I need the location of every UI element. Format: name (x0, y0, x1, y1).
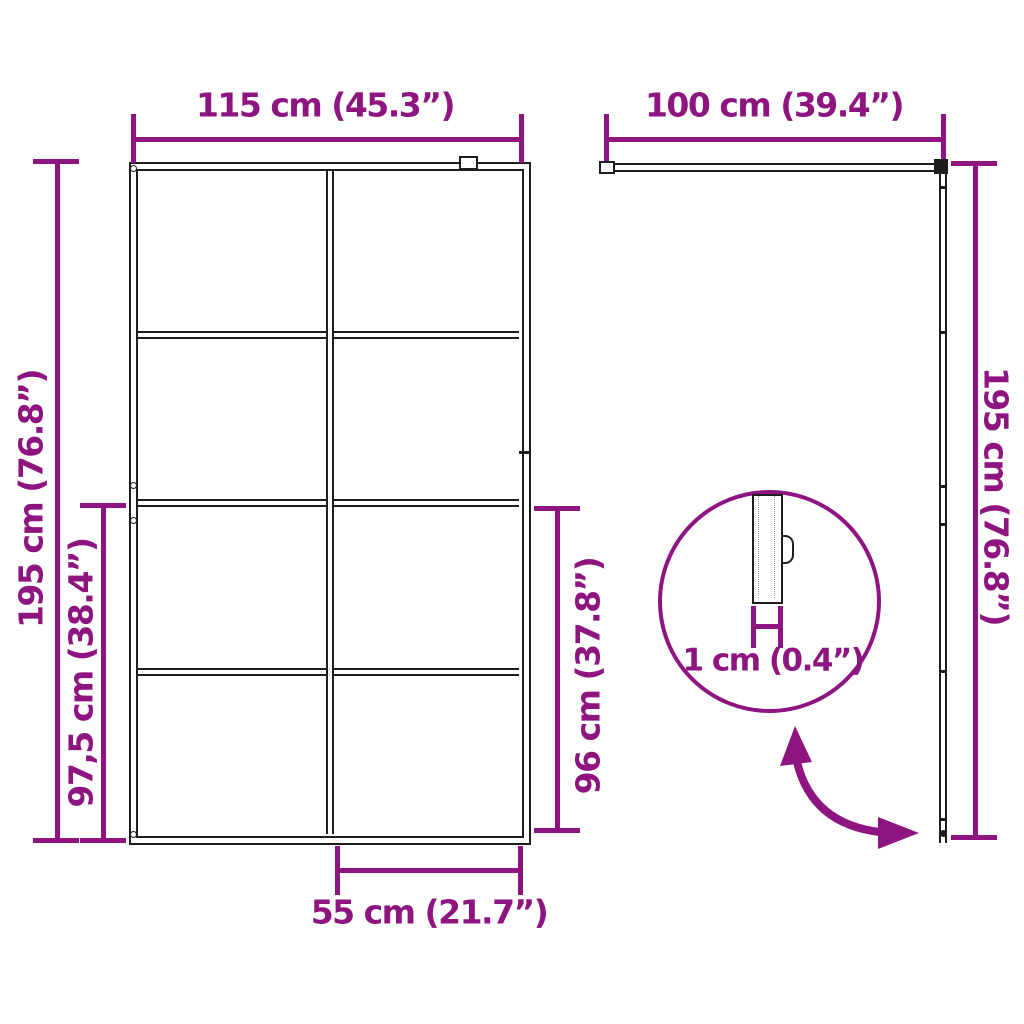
dimension-diagram: 115 cm (45.3”) 195 cm (76.8”) 97,5 cm (3… (0, 0, 1024, 1024)
panel-joint-mark (939, 186, 947, 189)
panel-joint-mark (939, 523, 947, 526)
panel-joint-mark (939, 485, 947, 488)
side-top-rail (601, 163, 941, 172)
detail-glass-dotted-edge (774, 496, 775, 598)
screw-icon (130, 482, 137, 489)
side-top-width-label: 100 cm (39.4”) (645, 89, 903, 122)
front-total-height-label: 195 cm (76.8”) (15, 370, 48, 628)
panel-handle-dot (940, 830, 947, 837)
side-rail-endcap (599, 161, 615, 174)
side-glass-panel (939, 172, 947, 843)
panel-joint-mark (939, 331, 947, 334)
screw-icon (130, 831, 137, 838)
panel-joint-mark (939, 818, 947, 821)
panel-joint-mark (939, 670, 947, 673)
front-bottom-width-label: 55 cm (21.7”) (311, 896, 548, 929)
screw-icon (130, 517, 137, 524)
side-rail-connector (934, 159, 948, 174)
curved-arrow-icon (740, 702, 940, 852)
top-bracket-icon (459, 156, 478, 170)
front-glass-height-label: 96 cm (37.8”) (572, 558, 605, 795)
front-top-width-label: 115 cm (45.3”) (196, 89, 454, 122)
detail-handle-icon (781, 535, 794, 564)
handle-mark-icon (519, 451, 530, 454)
front-lower-height-label: 97,5 cm (38.4”) (65, 538, 98, 807)
front-divider-vertical (326, 171, 334, 834)
screw-icon (130, 165, 137, 172)
detail-glass-section (752, 494, 783, 604)
detail-glass-dotted-edge (758, 496, 759, 598)
detail-thickness-label: 1 cm (0.4”) (683, 646, 864, 677)
side-total-height-label: 195 cm (76.8”) (980, 367, 1013, 625)
